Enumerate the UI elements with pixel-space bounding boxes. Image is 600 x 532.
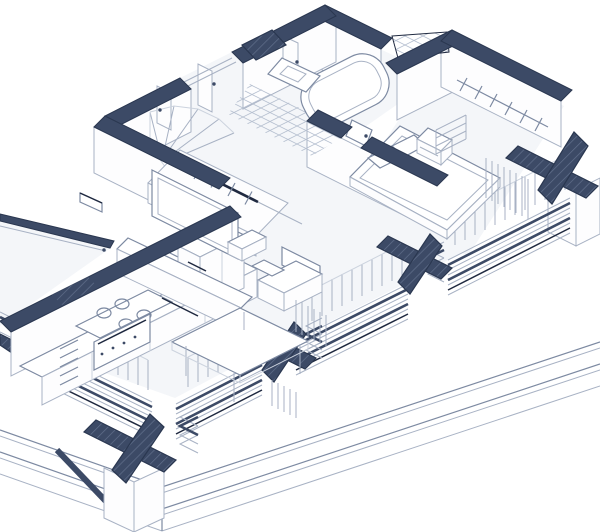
floor-plan-canvas: Axonometric cutaway floor plan of a smal… (0, 0, 600, 532)
bay-curtain (272, 380, 296, 418)
wall-hook (212, 82, 215, 85)
wall-hook (158, 108, 161, 111)
wall-shelf (80, 193, 102, 212)
axonometric-floor-plan: Axonometric cutaway floor plan of a smal… (0, 0, 600, 532)
door-handle (102, 248, 105, 251)
